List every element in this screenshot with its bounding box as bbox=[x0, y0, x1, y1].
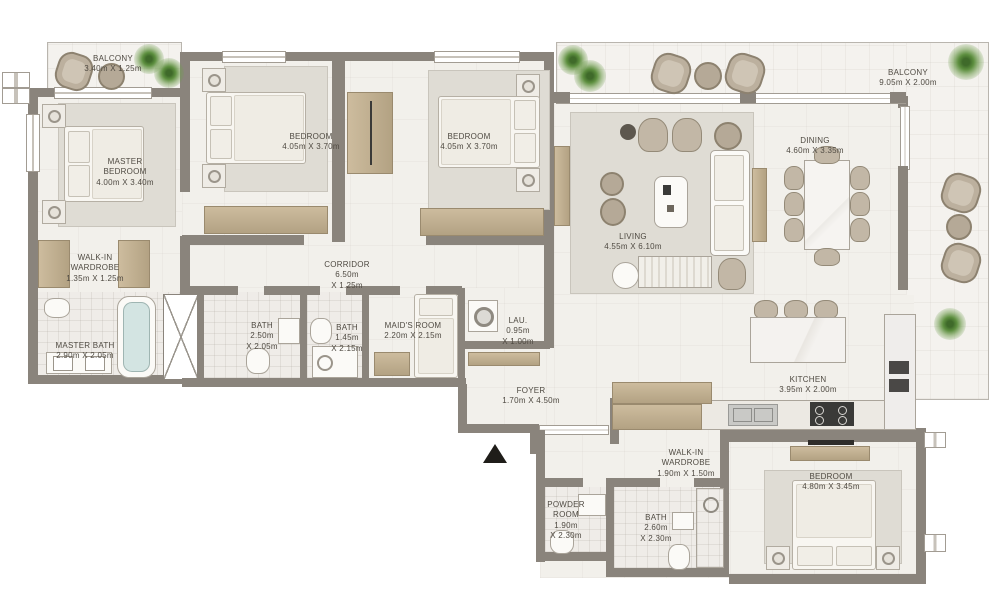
plant-icon bbox=[934, 308, 966, 340]
room-label-master-bath: MASTER BATH2.90m X 2.05m bbox=[55, 331, 114, 372]
nightstand-icon bbox=[516, 168, 540, 192]
room-label-kitchen: KITCHEN3.95m X 2.00m bbox=[779, 365, 837, 406]
room-label-maids-room: MAID'S ROOM2.20m X 2.15m bbox=[384, 311, 442, 352]
dining-chair-icon bbox=[850, 166, 870, 190]
shower-icon bbox=[696, 488, 724, 568]
floor-plan: BALCONY3.40m X 1.25m MASTER BEDROOM4.00m… bbox=[0, 0, 1003, 600]
tv-console-icon bbox=[790, 446, 870, 461]
nightstand-icon bbox=[42, 104, 66, 128]
dining-chair-icon bbox=[784, 218, 804, 242]
nightstand-icon bbox=[42, 200, 66, 224]
nightstand-icon bbox=[766, 546, 790, 570]
dining-chair-icon bbox=[784, 166, 804, 190]
armchair-icon bbox=[638, 118, 668, 152]
bathtub-icon bbox=[117, 296, 156, 378]
toilet-icon bbox=[44, 298, 70, 318]
room-label-bath-1: BATH2.50m X 2.05m bbox=[246, 311, 278, 362]
room-label-master-bedroom: MASTER BEDROOM4.00m X 3.40m bbox=[96, 147, 154, 198]
sink-icon bbox=[672, 512, 694, 530]
room-label-bedroom-4: BEDROOM4.80m X 3.45m bbox=[802, 462, 860, 503]
pouf-icon bbox=[714, 122, 742, 150]
room-label-bath-3: BATH2.60m X 2.30m bbox=[640, 503, 672, 554]
plant-icon bbox=[948, 44, 984, 80]
dining-chair-icon bbox=[814, 248, 840, 266]
closet-icon bbox=[374, 352, 410, 376]
console-icon bbox=[752, 168, 767, 242]
fridge-counter-icon bbox=[884, 314, 916, 430]
plant-icon bbox=[574, 60, 606, 92]
wardrobe-icon bbox=[420, 208, 544, 236]
room-label-powder-room: POWDER ROOM1.90m X 2.30m bbox=[547, 490, 585, 551]
closet-icon bbox=[554, 146, 570, 226]
wardrobe-icon bbox=[612, 404, 702, 430]
dresser-icon bbox=[347, 92, 393, 174]
room-label-bath-2: BATH1.45m X 2.15m bbox=[331, 313, 363, 364]
dining-chair-icon bbox=[850, 192, 870, 216]
wardrobe-icon bbox=[612, 382, 712, 404]
wardrobe-icon bbox=[38, 240, 70, 288]
room-label-laundry: LAU.0.95m X 1.00m bbox=[502, 306, 534, 357]
balcony-table-icon bbox=[946, 214, 972, 240]
kitchen-sink-icon bbox=[728, 404, 778, 426]
room-label-balcony-2: BALCONY9.05m X 2.00m bbox=[879, 58, 937, 99]
room-label-balcony-1: BALCONY3.40m X 1.25m bbox=[84, 44, 142, 85]
dining-chair-icon bbox=[784, 192, 804, 216]
room-label-foyer: FOYER1.70m X 4.50m bbox=[502, 376, 560, 417]
nightstand-icon bbox=[876, 546, 900, 570]
washer-icon bbox=[468, 300, 498, 332]
toilet-icon bbox=[310, 318, 332, 344]
balcony-table-icon bbox=[694, 62, 722, 90]
sofa-icon bbox=[710, 150, 750, 256]
side-table-icon bbox=[620, 124, 636, 140]
nightstand-icon bbox=[202, 164, 226, 188]
coffee-table-icon bbox=[654, 176, 688, 228]
shaft bbox=[163, 294, 199, 380]
armchair-icon bbox=[718, 258, 746, 290]
kitchen-island-icon bbox=[750, 317, 846, 363]
round-table-icon bbox=[612, 262, 639, 289]
dining-table-icon bbox=[804, 160, 850, 250]
vanity-sink-icon bbox=[278, 318, 300, 344]
dining-chair-icon bbox=[850, 218, 870, 242]
room-label-walk-in-wardrobe-2: WALK-IN WARDROBE1.90m X 1.50m bbox=[657, 438, 715, 489]
room-label-corridor: CORRIDOR6.50m X 1.25m bbox=[324, 250, 370, 301]
entrance-marker bbox=[483, 444, 507, 463]
armchair-icon bbox=[672, 118, 702, 152]
room-label-bedroom-2: BEDROOM4.05m X 3.70m bbox=[282, 122, 340, 163]
plant-icon bbox=[154, 58, 184, 88]
wardrobe-icon bbox=[204, 206, 328, 234]
room-label-dining: DINING4.60m X 3.35m bbox=[786, 126, 844, 167]
room-label-bedroom-3: BEDROOM4.05m X 3.70m bbox=[440, 122, 498, 163]
nightstand-icon bbox=[202, 68, 226, 92]
nightstand-icon bbox=[516, 74, 540, 98]
room-label-walk-in-wardrobe-1: WALK-IN WARDROBE1.35m X 1.25m bbox=[66, 243, 124, 294]
tv-icon bbox=[808, 440, 854, 445]
room-label-living: LIVING4.55m X 6.10m bbox=[604, 222, 662, 263]
pouf-icon bbox=[600, 172, 624, 196]
